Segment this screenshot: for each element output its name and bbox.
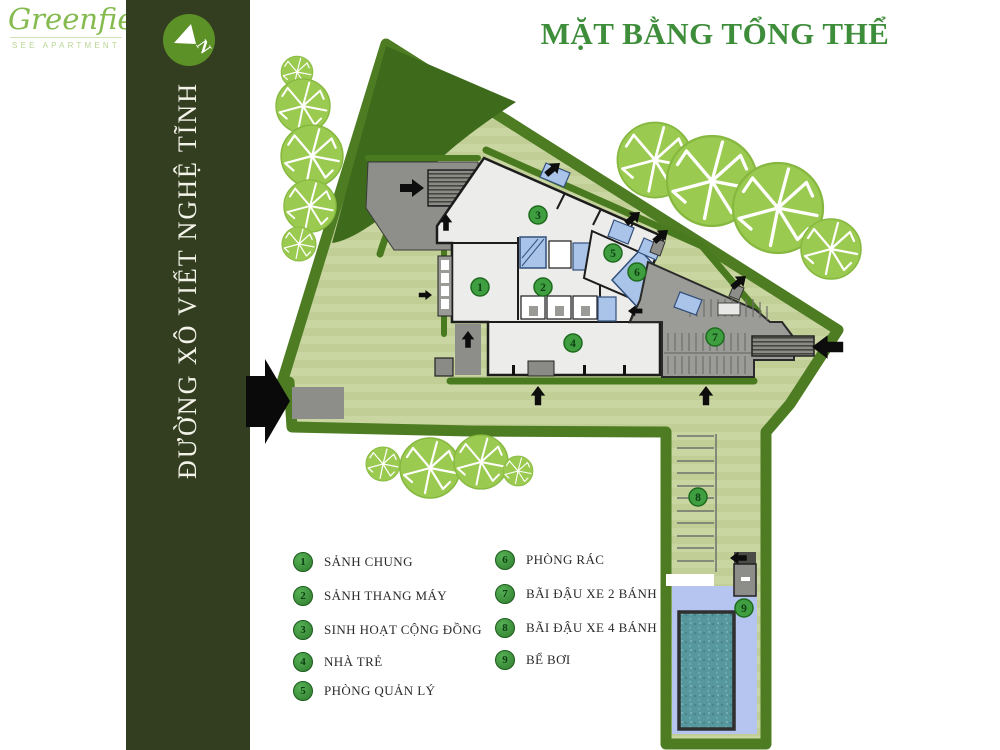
road-pavement [292,387,344,419]
legend-dot-7: 7 [495,584,515,604]
legend-dot-8: 8 [495,618,515,638]
legend-dot-3: 3 [293,620,313,640]
legend-label-1: SẢNH CHUNG [324,554,413,570]
legend-dot-5: 5 [293,681,313,701]
legend-dot-9: 9 [495,650,515,670]
legend-label-9: BỂ BƠI [526,652,571,668]
legend-item: 8 BÃI ĐẬU XE 4 BÁNH [495,618,657,638]
marker-9: 9 [741,603,747,615]
legend-item: 5 PHÒNG QUẢN LÝ [293,681,435,701]
pool-zone [666,552,757,734]
legend-label-3: SINH HOẠT CỘNG ĐỒNG [324,622,482,638]
legend-label-4: NHÀ TRẺ [324,654,383,670]
legend-dot-2: 2 [293,586,313,606]
marker-8: 8 [695,492,701,504]
marker-4: 4 [570,338,576,350]
marker-1: 1 [477,282,483,294]
marker-3: 3 [535,210,541,222]
legend-item: 3 SINH HOẠT CỘNG ĐỒNG [293,620,482,640]
swimming-pool [679,612,734,729]
marker-7: 7 [712,332,718,344]
marker-2: 2 [540,282,546,294]
legend-item: 1 SẢNH CHUNG [293,552,413,572]
site-plan-page: Greenfield SEE APARTMENT N ĐƯỜNG XÔ VIẾT… [0,0,1000,750]
legend-label-5: PHÒNG QUẢN LÝ [324,683,435,699]
marker-5: 5 [610,248,616,260]
legend-label-6: PHÒNG RÁC [526,552,604,568]
legend-item: 9 BỂ BƠI [495,650,571,670]
legend-dot-4: 4 [293,652,313,672]
marker-6: 6 [634,267,640,279]
legend-dot-6: 6 [495,550,515,570]
legend-item: 4 NHÀ TRẺ [293,652,383,672]
legend-item: 7 BÃI ĐẬU XE 2 BÁNH [495,584,657,604]
bike-racks [438,256,452,316]
legend-item: 2 SẢNH THANG MÁY [293,586,447,606]
legend-label-2: SẢNH THANG MÁY [324,588,447,604]
legend-item: 6 PHÒNG RÁC [495,550,604,570]
legend-dot-1: 1 [293,552,313,572]
legend-label-7: BÃI ĐẬU XE 2 BÁNH [526,586,657,602]
legend-label-8: BÃI ĐẬU XE 4 BÁNH [526,620,657,636]
